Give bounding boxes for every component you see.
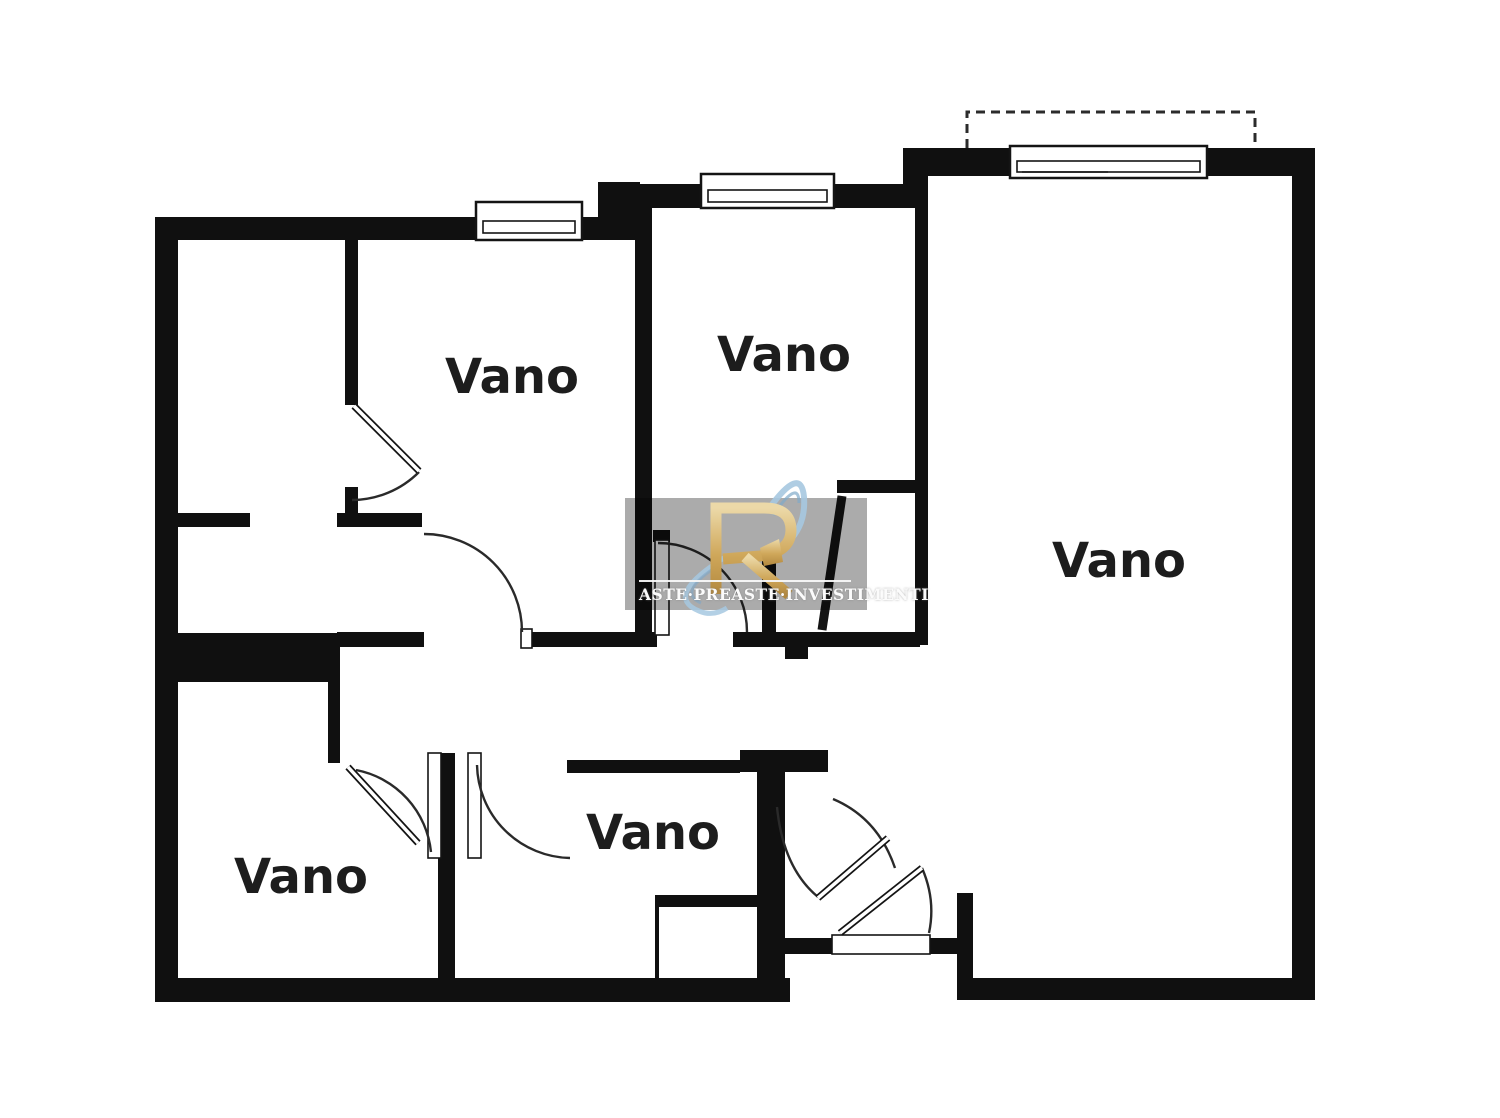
room-label-right-large: Vano (1052, 533, 1186, 589)
room-label-bottom-middle: Vano (586, 805, 720, 861)
room-label-bottom-left: Vano (234, 849, 368, 905)
floor-plan-page: Vano Vano Vano Vano Vano ASTE·PREASTE·IN… (0, 0, 1500, 1118)
window-icon-top-middle (701, 174, 834, 208)
room-label-top-middle: Vano (717, 327, 851, 383)
window-icon-top-left (476, 202, 582, 240)
floor-plan-canvas (0, 0, 1500, 1118)
room-label-top-left: Vano (445, 349, 579, 405)
watermark-caption: ASTE·PREASTE·INVESTIMENTI (639, 580, 851, 604)
window-icon-top-right (1010, 146, 1207, 178)
